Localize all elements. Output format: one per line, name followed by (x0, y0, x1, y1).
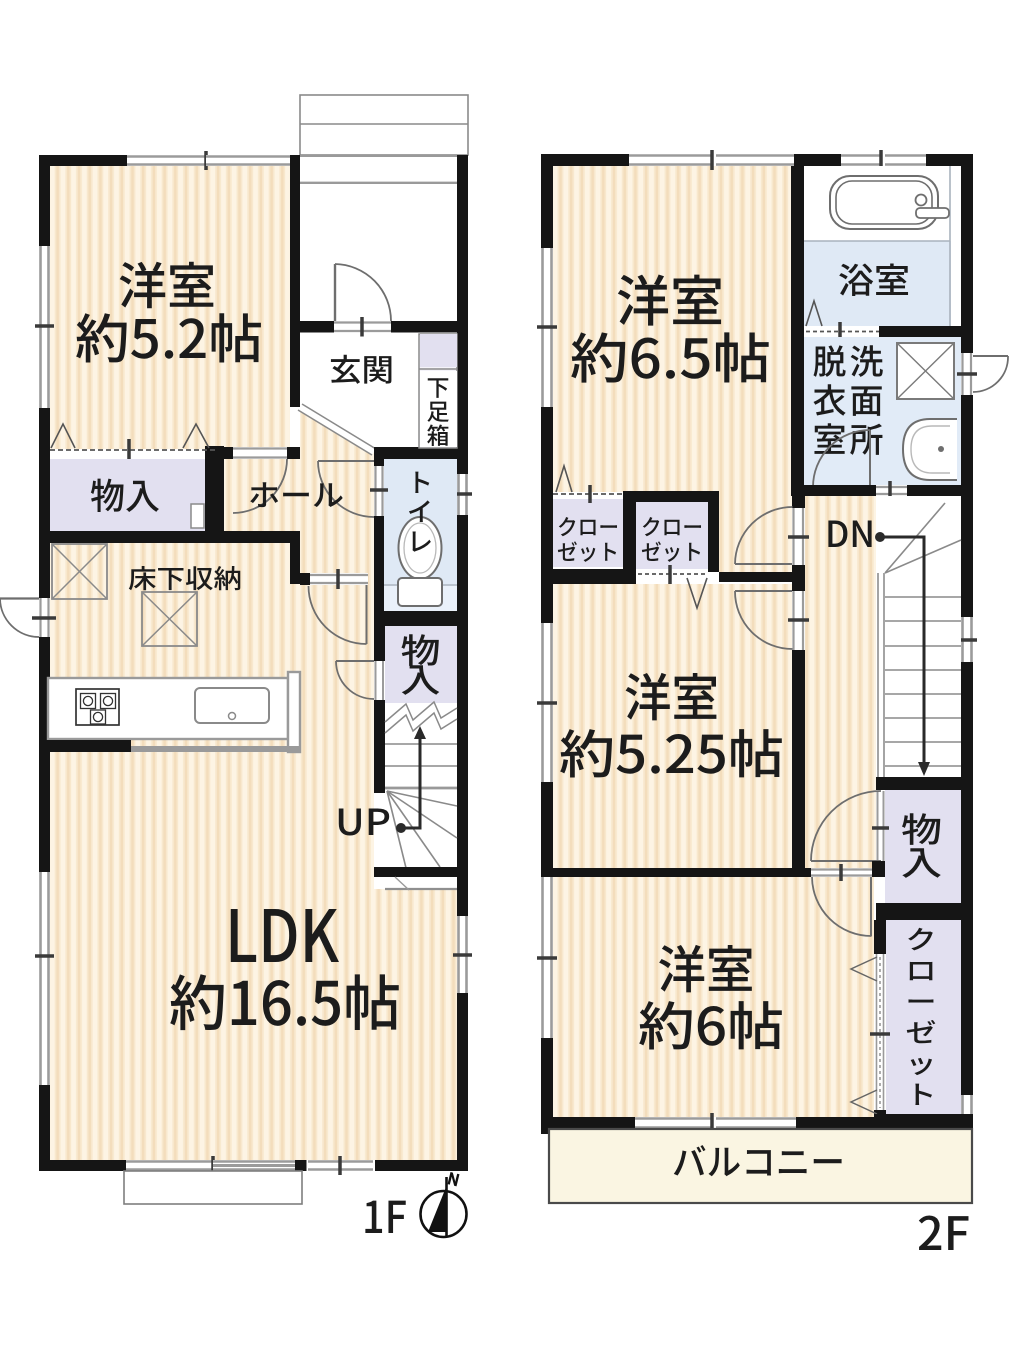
svg-text:レ: レ (407, 522, 433, 559)
svg-text:2F: 2F (917, 1198, 970, 1264)
svg-text:物入: 物入 (90, 468, 160, 520)
svg-text:ト: ト (906, 1075, 937, 1112)
svg-text:入: 入 (901, 836, 942, 885)
svg-text:ゼット: ゼット (641, 535, 703, 567)
svg-text:入: 入 (401, 653, 441, 702)
svg-text:UP: UP (335, 794, 391, 846)
svg-text:ゼット: ゼット (557, 535, 619, 567)
svg-text:所: 所 (850, 413, 884, 462)
svg-text:床下収納: 床下収納 (128, 559, 242, 596)
svg-text:ホール: ホール (248, 471, 344, 515)
svg-text:箱: 箱 (427, 417, 450, 451)
svg-text:浴室: 浴室 (838, 253, 910, 304)
svg-text:バルコニー: バルコニー (672, 1134, 845, 1186)
svg-text:玄関: 玄関 (329, 345, 394, 390)
svg-text:約16.5帖: 約16.5帖 (169, 956, 401, 1043)
svg-text:約6帖: 約6帖 (638, 985, 784, 1060)
svg-text:1F: 1F (362, 1182, 407, 1246)
svg-text:約6.5帖: 約6.5帖 (570, 315, 771, 394)
svg-text:約5.2帖: 約5.2帖 (75, 298, 263, 374)
svg-text:DN: DN (825, 506, 875, 558)
svg-text:約5.25帖: 約5.25帖 (559, 713, 784, 788)
